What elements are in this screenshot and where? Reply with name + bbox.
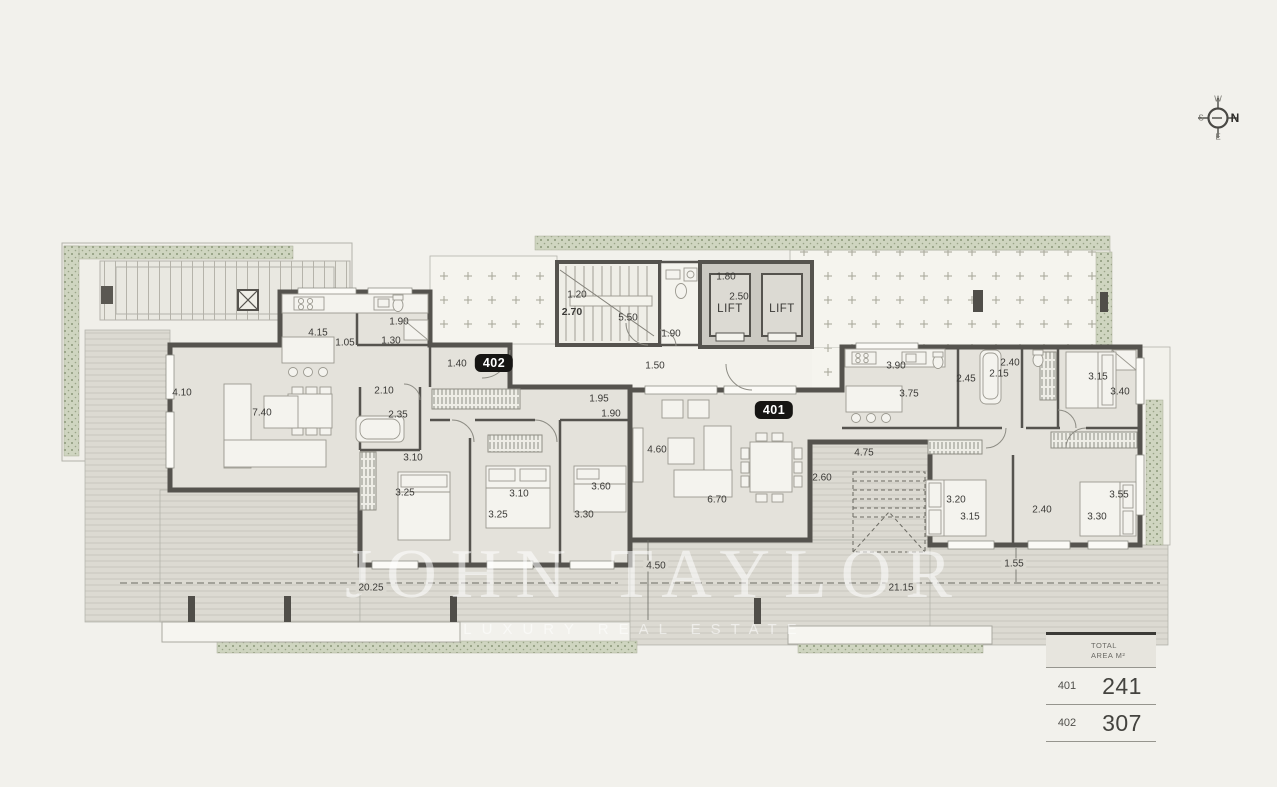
dimension-label: 3.90 <box>886 361 905 372</box>
dimension-label: 2.15 <box>989 369 1008 380</box>
dimension-label: 1.90 <box>389 317 408 328</box>
table-row: 401 241 <box>1046 668 1156 705</box>
unit-badge-402: 402 <box>475 354 513 372</box>
dimension-label: 3.15 <box>1088 372 1107 383</box>
dimension-label: 3.20 <box>946 495 965 506</box>
dimension-label: 4.50 <box>643 561 668 572</box>
dimension-label: 2.70 <box>562 306 582 318</box>
dimension-label: 1.95 <box>589 394 608 405</box>
dimension-label: 6.70 <box>707 495 726 506</box>
unit-number: 402 <box>1046 717 1088 729</box>
unit-number: 401 <box>1046 680 1088 692</box>
unit-area: 241 <box>1088 673 1156 700</box>
compass-west: W <box>1214 95 1222 104</box>
area-table-header-line1: TOTAL <box>1091 641 1156 651</box>
unit-area: 307 <box>1088 710 1156 737</box>
dimension-label: 4.60 <box>647 445 666 456</box>
dimension-label: 4.15 <box>308 328 327 339</box>
table-row: 402 307 <box>1046 705 1156 742</box>
dimension-label: 2.40 <box>1032 505 1051 516</box>
dimension-label: 3.25 <box>395 488 414 499</box>
dimension-label: 3.55 <box>1109 490 1128 501</box>
dimension-label: 3.25 <box>488 510 507 521</box>
floor-plan-page: FLOOR 4 FLOOR PLANS <box>0 0 1277 787</box>
dimension-label: 3.10 <box>403 453 422 464</box>
dimension-label: 20.25 <box>355 583 386 594</box>
area-table-header-line2: AREA M² <box>1091 651 1156 661</box>
lift-label: LIFT <box>769 303 795 315</box>
dimension-label: 2.10 <box>374 386 393 397</box>
compass-north: N <box>1231 111 1240 125</box>
compass: W N S E <box>1190 90 1250 150</box>
dimension-label: 3.30 <box>574 510 593 521</box>
dimension-label: 1.90 <box>661 329 680 340</box>
dimension-label: 5.50 <box>618 313 637 324</box>
unit-badge-401: 401 <box>755 401 793 419</box>
dimension-label: 4.10 <box>172 388 191 399</box>
dimension-label: 1.55 <box>1001 559 1026 570</box>
dimension-label: 1.40 <box>447 359 466 370</box>
dimension-label: 1.50 <box>645 361 664 372</box>
dimension-label: 2.35 <box>388 410 407 421</box>
dimension-label: 1.05 <box>335 338 354 349</box>
dimension-label: 1.30 <box>381 336 400 347</box>
compass-east: E <box>1215 133 1220 142</box>
compass-south: S <box>1198 114 1203 123</box>
dimension-label: 2.45 <box>956 374 975 385</box>
dimension-label: 3.10 <box>509 489 528 500</box>
dimension-label: 1.80 <box>716 272 735 283</box>
dimension-label: 2.50 <box>729 292 748 303</box>
dimension-label: 3.30 <box>1087 512 1106 523</box>
dimension-label: 3.40 <box>1110 387 1129 398</box>
dimension-label: 1.90 <box>601 409 620 420</box>
area-table: TOTAL AREA M² 401 241 402 307 <box>1046 632 1156 742</box>
dimension-label: 3.15 <box>960 512 979 523</box>
dimension-label: 3.60 <box>591 482 610 493</box>
dimension-label: 21.15 <box>885 583 916 594</box>
dimension-label: 2.40 <box>1000 358 1019 369</box>
dimension-label: 4.75 <box>854 448 873 459</box>
dimension-label: 3.75 <box>899 389 918 400</box>
dimension-label: 1.20 <box>567 290 586 301</box>
dimension-label: 7.40 <box>252 408 271 419</box>
area-table-header: TOTAL AREA M² <box>1046 635 1156 668</box>
dimension-label: 2.60 <box>812 473 831 484</box>
lift-label: LIFT <box>717 303 743 315</box>
